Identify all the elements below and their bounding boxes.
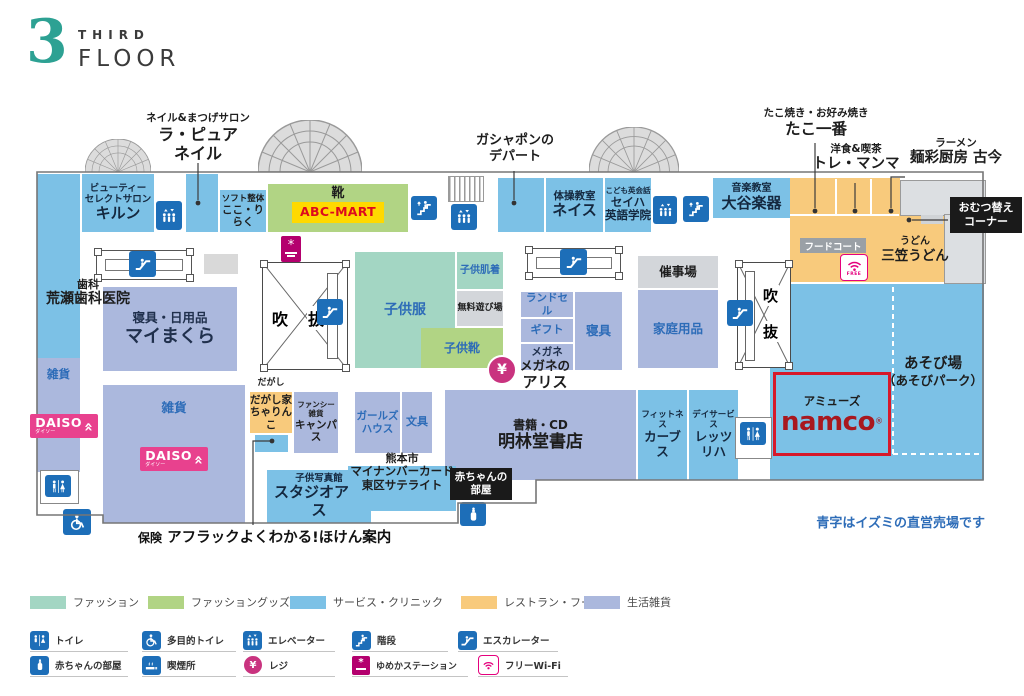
kokoriraku-category: ソフト整体 [222, 194, 265, 204]
seiha-line3: 英語学院 [605, 209, 651, 223]
girls-house-line2: ハウス [362, 423, 394, 435]
abc-mart-category: 靴 [331, 186, 344, 201]
hoken-counter [255, 435, 288, 452]
dome-window [258, 120, 362, 172]
legend-fashion-goods: ファッショングッズ [148, 594, 290, 610]
room-bungu: 文具 [402, 392, 432, 453]
room-gift: ギフト [521, 319, 573, 342]
free-play-area: 無料遊び場 [457, 291, 503, 326]
mynumber-line3: 東区サテライト [344, 479, 460, 493]
mikasa-name: 三笠うどん [865, 248, 965, 264]
legend-stairs: 階段 [352, 629, 448, 652]
shingu-label: 寝具 [586, 324, 611, 339]
otani-name: 大谷楽器 [721, 195, 781, 213]
food-court-label: フードコート [800, 238, 866, 253]
namco-wordmark: namco [781, 407, 875, 437]
arase-name: 荒瀬歯科医院 [18, 291, 158, 308]
campus-category: ファンシー雑貨 [294, 401, 338, 419]
legend-swatch-fashion-goods [148, 596, 184, 609]
legend-yumeka-station: * ゆめかステーション [352, 654, 468, 677]
escalator-icon [458, 631, 477, 650]
omutsu-line2: コーナー [964, 215, 1008, 229]
legend-escalator: エスカレーター [458, 629, 558, 652]
smoking-icon [142, 656, 161, 675]
baby-room-line1: 赤ちゃんの [455, 471, 508, 484]
dome-window [589, 127, 679, 172]
room-lets-riha: デイサービス レッツリハ [689, 390, 738, 480]
floor-map-page: 3 THIRD FLOOR 歯科 荒瀬歯科医院 ビューティー セレクトサロン キ… [0, 0, 1024, 696]
room-curves: フィットネス カーブス [638, 390, 687, 480]
legend-smoking-label: 喫煙所 [167, 658, 196, 672]
room-koko-riraku: ソフト整体 ここ・りらく [220, 190, 266, 232]
elevator-icon [243, 631, 262, 650]
dagashiya-line2: ちゃりんこ [250, 406, 292, 431]
megane-label: メガネ [531, 346, 563, 358]
legend-escalator-label: エスカレーター [483, 633, 550, 647]
kiln-line1: ビューティー [90, 183, 146, 194]
legend-toilet: トイレ [30, 629, 128, 652]
meirindo-category: 書籍・CD [513, 418, 568, 432]
daiso-kana: ダイソー [35, 430, 55, 435]
daiso-chevron: « [190, 455, 208, 463]
free-play-label: 無料遊び場 [457, 303, 502, 314]
room-kiln: ビューティー セレクトサロン キルン [82, 174, 154, 232]
stairs-icon [411, 196, 437, 220]
asobiba-line2: （あそびパーク） [878, 373, 988, 388]
asobi-park-label: あそび場 （あそびパーク） [878, 356, 988, 388]
gift-label: ギフト [531, 324, 564, 337]
abc-mart-logo: ABC-MART [292, 202, 384, 223]
legend-stairs-label: 階段 [377, 633, 396, 647]
legend-elevator: エレベーター [243, 629, 335, 652]
legend-free-wifi-label: フリーWi-Fi [505, 658, 561, 672]
legend-label-living: 生活雑貨 [627, 594, 671, 610]
zakka-center-label: 雑貨 [161, 401, 186, 416]
room-neisu: 体操教室 ネイス [546, 178, 603, 232]
daiso-logo: DAISO ダイソー « [140, 447, 208, 471]
daiso-wordmark: DAISO [145, 450, 192, 463]
zakka-left-label: 雑貨 [47, 368, 70, 382]
curves-category: フィットネス [638, 410, 687, 430]
legend-accessible-toilet-label: 多目的トイレ [167, 633, 224, 647]
nail-name1: ラ・ピュア [128, 125, 268, 144]
toilet-icon [740, 422, 766, 445]
legend-register: ¥ レジ [243, 654, 335, 677]
curves-name: カーブス [638, 430, 687, 460]
legend-baby-room-label: 赤ちゃんの部屋 [55, 658, 122, 672]
megane-no-alice-label: メガネの アリス [505, 358, 585, 391]
namco-reg-mark: ® [875, 417, 883, 426]
baby-bottle-icon [30, 656, 49, 675]
room-arase-dental-strip [37, 174, 80, 358]
event-space: 催事場 [638, 256, 718, 288]
free-wifi-icon [478, 655, 499, 675]
legend-service-clinic: サービス・クリニック [290, 594, 443, 610]
toilet-icon [45, 475, 71, 497]
legend-elevator-label: エレベーター [268, 633, 325, 647]
accessible-toilet-icon [142, 631, 161, 650]
mymakura-name: マイまくら [125, 326, 215, 347]
tako-category: たこ焼き・お好み焼き [740, 107, 892, 120]
room-dagashiya-charinko: だがし家 ちゃりんこ [250, 392, 292, 433]
randoseru-label: ランドセル [521, 292, 573, 317]
room-abc-mart: 靴 ABC-MART [268, 184, 408, 232]
neisu-name: ネイス [552, 202, 597, 220]
tako-name: たこ一番 [740, 120, 892, 139]
kids-clothes-label: 子供服 [384, 302, 426, 319]
room-girls-house: ガールズ ハウス [355, 392, 400, 453]
event-space-label: 催事場 [659, 265, 697, 280]
escalator-icon [727, 300, 753, 326]
baby-room-line2: 部屋 [471, 484, 492, 497]
floor-word-third: THIRD [78, 28, 150, 42]
room-otani-gakki: 音楽教室 大谷楽器 [713, 178, 790, 218]
kokon-name: 麺彩厨房 古今 [888, 150, 1024, 167]
atrium-char-1: 吹 [762, 285, 779, 306]
household-goods-label: 家庭用品 [653, 322, 703, 337]
kiln-name: キルン [96, 205, 141, 223]
campus-name: キャンパス [294, 419, 338, 444]
escalator-icon [560, 249, 587, 275]
nail-category: ネイル&まつげサロン [128, 112, 268, 125]
escalator-icon [317, 299, 343, 325]
room-meirindo: 書籍・CD 明林堂書店 [445, 390, 636, 480]
stairs-icon [683, 196, 709, 222]
legend-label-fashion-goods: ファッショングッズ [191, 594, 290, 610]
mynumber-line2: マイナンバーカード [344, 465, 460, 479]
legend-swatch-food [461, 596, 497, 609]
legend-smoking: 喫煙所 [142, 654, 236, 677]
elevator-icon [156, 201, 182, 230]
yumeka-station-icon: * [352, 656, 370, 675]
hoken-prefix: 保険 [138, 531, 162, 545]
room-kids-underwear: 子供肌着 [457, 252, 503, 289]
kids-underwear-label: 子供肌着 [460, 265, 500, 277]
callout-tako-ichiban: たこ焼き・お好み焼き たこ一番 [740, 107, 892, 138]
elevator-icon [653, 196, 677, 224]
room-gashapon-department [498, 178, 544, 232]
legend-swatch-fashion [30, 596, 66, 609]
stairs-plan-graphic [448, 176, 484, 202]
elevator-icon [451, 204, 477, 230]
kokoriraku-name: ここ・りらく [220, 204, 266, 229]
kids-shoes-label: 子供靴 [444, 341, 480, 355]
callout-kokon-ramen: ラーメン 麺彩厨房 古今 [888, 137, 1024, 167]
dagashi-category: だがし [240, 378, 302, 389]
megane-alice-line2: アリス [505, 373, 585, 391]
izumi-note: 青字はイズミの直営売場です [700, 512, 985, 531]
daiso-wordmark: DAISO [35, 417, 82, 430]
free-wifi-icon: FREE [840, 254, 868, 281]
free-wifi-text: FREE [847, 272, 862, 277]
namco-logo: namco® [781, 409, 883, 435]
legend-restaurant-food: レストラン・フード [461, 594, 603, 610]
mymakura-category: 寝具・日用品 [132, 311, 207, 326]
room-household-goods: 家庭用品 [638, 290, 718, 368]
legend-label-service: サービス・クリニック [333, 594, 443, 610]
letsriha-name: レッツリハ [689, 430, 738, 460]
callout-diaper-corner: おむつ替え コーナー [950, 197, 1022, 233]
yumeka-station-icon: * [281, 236, 301, 262]
seiha-line2: セイハ [611, 196, 645, 210]
toilet-icon [30, 631, 49, 650]
floor-number: 3 [26, 12, 68, 72]
legend-register-label: レジ [269, 658, 288, 672]
girls-house-line1: ガールズ [357, 410, 399, 422]
register-icon: ¥ [243, 655, 263, 675]
legend-swatch-living [584, 596, 620, 609]
meirindo-name: 明林堂書店 [498, 432, 583, 452]
dagashiya-line1: だがし家 [250, 394, 292, 406]
callout-gashapon: ガシャポンの デパート [445, 133, 585, 164]
hoken-name: アフラックよくわかる!ほけん案内 [167, 530, 391, 546]
atrium-char-1: 吹 [271, 306, 289, 330]
atrium-char-2: 抜 [762, 321, 779, 342]
daiso-kana: ダイソー [145, 463, 165, 468]
escalator-icon [129, 251, 156, 277]
mikasa-category: うどん [865, 236, 965, 248]
legend-fashion: ファッション [30, 594, 139, 610]
daiso-logo: DAISO ダイソー « [30, 414, 98, 438]
omutsu-line1: おむつ替え [959, 201, 1014, 215]
callout-hoken-annai: 保険 アフラックよくわかる!ほけん案内 [138, 526, 391, 547]
bungu-label: 文具 [406, 416, 428, 429]
legend-baby-room: 赤ちゃんの部屋 [30, 654, 128, 677]
asobiba-line1: あそび場 [878, 356, 988, 373]
floor-word-floor: FLOOR [78, 46, 180, 72]
legend-label-fashion: ファッション [73, 594, 139, 610]
baby-bottle-icon [460, 502, 486, 526]
legend-accessible-toilet: 多目的トイレ [142, 629, 236, 652]
legend-living-goods: 生活雑貨 [584, 594, 671, 610]
baby-room-label: 赤ちゃんの 部屋 [450, 468, 512, 500]
service-space [204, 254, 238, 274]
room-campus: ファンシー雑貨 キャンパス [294, 392, 338, 453]
nail-name2: ネイル [128, 144, 268, 163]
mynumber-label: 熊本市 マイナンバーカード 東区サテライト [344, 452, 460, 493]
legend-free-wifi: フリーWi-Fi [478, 654, 568, 677]
accessible-toilet-icon [63, 509, 91, 535]
legend-toilet-label: トイレ [55, 633, 84, 647]
diaper-corner-spot [921, 215, 943, 224]
callout-nail-salon: ネイル&まつげサロン ラ・ピュア ネイル [128, 112, 268, 163]
room-arase-dental-label: 歯科 荒瀬歯科医院 [18, 278, 158, 308]
letsriha-category: デイサービス [689, 410, 738, 430]
gashapon-line1: ガシャポンの [445, 133, 585, 149]
room-mikasa-udon-label: うどん 三笠うどん [865, 236, 965, 264]
gashapon-line2: デパート [445, 149, 585, 165]
stairs-icon [352, 631, 371, 650]
room-namco: アミューズ namco® [773, 372, 891, 456]
room-la-pure-nail [186, 174, 218, 232]
kokon-category: ラーメン [888, 137, 1024, 150]
legend-swatch-service [290, 596, 326, 609]
room-randoseru: ランドセル [521, 292, 573, 317]
room-seiha: こども英会話 セイハ 英語学院 [605, 178, 651, 232]
daiso-chevron: « [80, 422, 98, 430]
legend-yumeka-label: ゆめかステーション [376, 659, 457, 672]
megane-alice-line1: メガネの [505, 358, 585, 373]
arase-category: 歯科 [18, 278, 158, 291]
